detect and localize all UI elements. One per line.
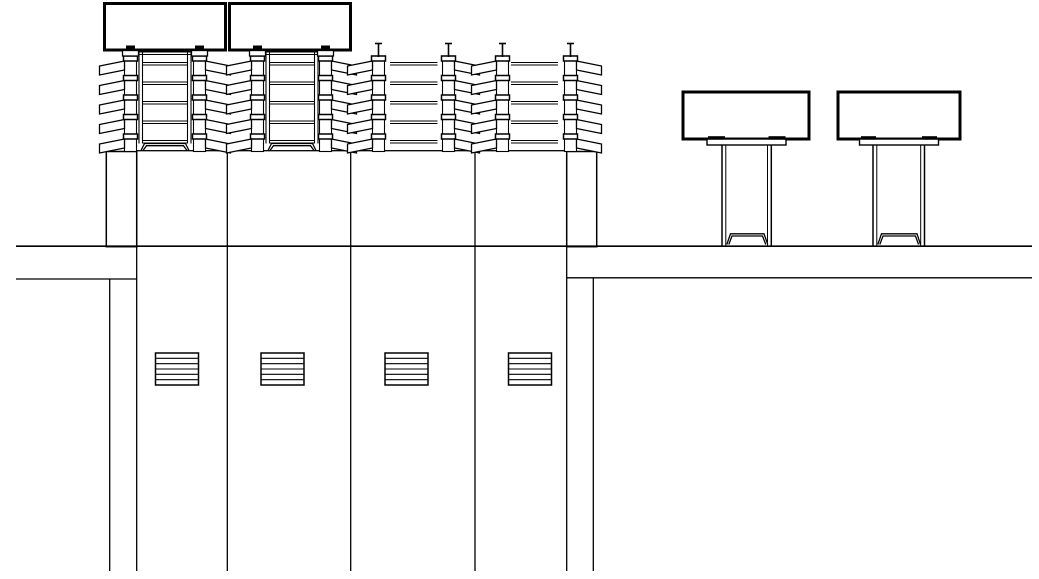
insulator-flange: [442, 115, 456, 120]
insulator-stack: [100, 46, 139, 154]
insulator-flange: [496, 134, 510, 139]
insulator-flange: [564, 76, 578, 81]
insulator-shed: [472, 61, 497, 75]
insulator-flange: [496, 76, 510, 81]
insulator-shed: [348, 100, 373, 114]
insulator-flange: [124, 56, 138, 61]
hatch-symbol: [385, 353, 428, 385]
insulator-flange: [124, 115, 138, 120]
insulator-shed: [100, 61, 125, 75]
side-pedestal: [567, 152, 597, 247]
insulator-shed: [472, 100, 497, 114]
insulator-shed: [227, 81, 252, 95]
insulator-stack: [192, 46, 231, 154]
insulator-flange: [251, 76, 265, 81]
insulator-flange: [442, 95, 456, 100]
bearing-plate: [860, 139, 939, 145]
pier-cap-box: [838, 92, 960, 139]
insulator-flange: [124, 95, 138, 100]
insulator-flange: [319, 56, 333, 61]
hatch-symbol: [261, 353, 304, 385]
insulator-flange: [251, 134, 265, 139]
insulator-flange: [319, 115, 333, 120]
bearing-plate: [707, 139, 786, 145]
insulator-shed: [348, 61, 373, 75]
pier-cap-box: [683, 92, 809, 139]
drawing-viewport: [0, 0, 1039, 579]
insulator-flange: [442, 134, 456, 139]
insulator-stack: [348, 44, 386, 154]
insulator-shed: [577, 61, 602, 75]
pier-structure: [838, 92, 960, 246]
support-frame: [266, 52, 318, 151]
frame-base: [141, 144, 189, 151]
post-base-inner: [729, 236, 766, 245]
bearing-pad: [769, 136, 786, 139]
insulator-flange: [193, 95, 207, 100]
frame-base-inner: [270, 146, 314, 151]
hatch-symbol: [509, 353, 552, 385]
insulator-stack: [318, 46, 357, 154]
frame-base: [268, 144, 316, 151]
equipment-box: [105, 4, 226, 51]
insulator-shed: [227, 100, 252, 114]
side-pedestal: [106, 152, 136, 247]
insulator-shed: [472, 81, 497, 95]
pier-structure: [683, 92, 809, 246]
insulator-flange: [496, 95, 510, 100]
technical-drawing: [0, 0, 1039, 579]
insulator-stack: [564, 44, 602, 154]
insulator-flange: [124, 134, 138, 139]
insulator-stack: [227, 46, 266, 154]
equipment-box: [230, 4, 351, 51]
hatch-symbol: [156, 353, 199, 385]
insulator-flange: [193, 134, 207, 139]
mounting-pad: [126, 46, 135, 52]
insulator-shed: [227, 120, 252, 134]
insulator-shed: [348, 120, 373, 134]
insulator-flange: [564, 95, 578, 100]
bearing-pad: [708, 136, 725, 139]
insulator-stack: [472, 44, 510, 154]
bearing-pad: [861, 136, 876, 139]
insulator-shed: [577, 120, 602, 134]
mounting-plate: [250, 51, 266, 57]
insulator-shed: [577, 81, 602, 95]
insulator-shed: [100, 100, 125, 114]
mounting-plate: [318, 51, 334, 57]
frame-base-inner: [143, 146, 187, 151]
connecting-rails: [511, 63, 558, 144]
insulator-flange: [251, 95, 265, 100]
insulator-flange: [319, 76, 333, 81]
insulator-flange: [193, 115, 207, 120]
insulator-flange: [319, 95, 333, 100]
mounting-plate: [123, 51, 139, 57]
insulator-flange: [193, 56, 207, 61]
support-column: [137, 151, 567, 247]
connecting-rails: [390, 63, 438, 144]
insulator-flange: [372, 95, 386, 100]
support-frame: [139, 52, 191, 151]
insulator-stack: [442, 44, 480, 154]
insulator-flange: [124, 76, 138, 81]
insulator-flange: [251, 115, 265, 120]
insulator-shed: [100, 120, 125, 134]
insulator-flange: [372, 115, 386, 120]
insulator-flange: [193, 76, 207, 81]
insulator-flange: [319, 134, 333, 139]
insulator-shed: [577, 100, 602, 114]
insulator-shed: [227, 61, 252, 75]
insulator-flange: [564, 115, 578, 120]
insulator-flange: [372, 134, 386, 139]
mounting-pad: [253, 46, 262, 52]
insulator-shed: [348, 81, 373, 95]
insulator-shed: [100, 81, 125, 95]
support-column-block: [137, 151, 567, 247]
insulator-flange: [564, 134, 578, 139]
insulator-flange: [251, 56, 265, 61]
insulator-flange: [496, 115, 510, 120]
mounting-pad: [321, 46, 330, 52]
bearing-pad: [922, 136, 937, 139]
insulator-shed: [472, 120, 497, 134]
mounting-pad: [195, 46, 204, 52]
mounting-plate: [192, 51, 208, 57]
insulator-flange: [372, 76, 386, 81]
underground: [16, 246, 1032, 571]
post-base-inner: [880, 236, 919, 245]
insulator-flange: [442, 76, 456, 81]
